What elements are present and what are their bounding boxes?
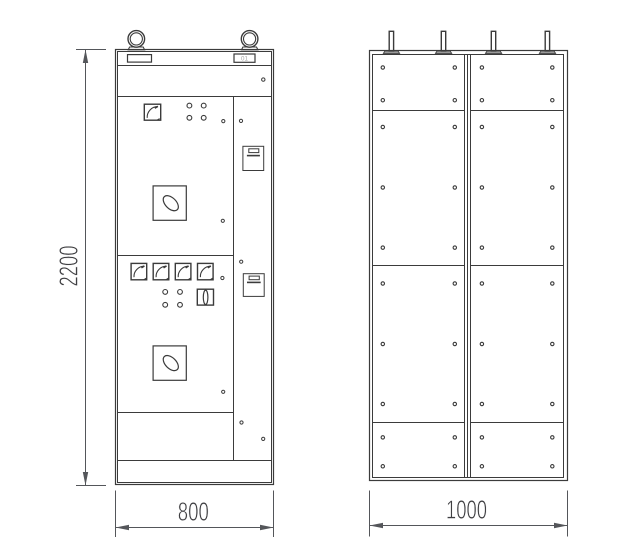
- svg-text:800: 800: [178, 497, 209, 527]
- svg-text:01: 01: [241, 56, 248, 63]
- svg-text:1000: 1000: [446, 495, 487, 525]
- svg-text:2200: 2200: [54, 246, 84, 287]
